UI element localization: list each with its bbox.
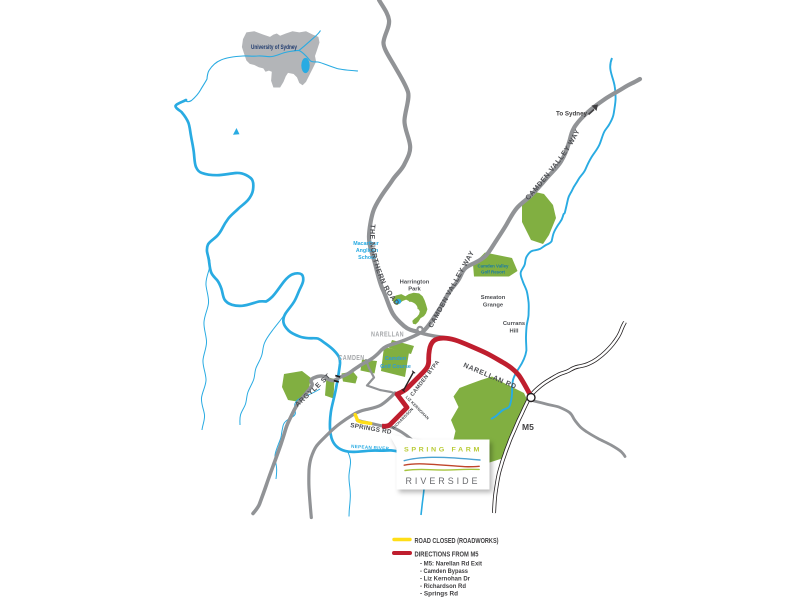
svg-text:CAMDEN VALLEY WAY: CAMDEN VALLEY WAY: [428, 250, 477, 330]
svg-text:CAMDEN: CAMDEN: [339, 353, 365, 362]
svg-text:Smeaton: Smeaton: [481, 295, 506, 301]
svg-text:RIVERSIDE: RIVERSIDE: [406, 476, 481, 486]
svg-text:Park: Park: [408, 287, 421, 293]
svg-text:RICHARDSON RD: RICHARDSON RD: [0, 0, 414, 430]
svg-text:Grange: Grange: [483, 303, 504, 309]
svg-text:Harrington: Harrington: [400, 280, 430, 286]
svg-text:Golf Course: Golf Course: [380, 364, 411, 370]
svg-text:SPRING FARM: SPRING FARM: [404, 447, 482, 454]
svg-text:Golf Resort: Golf Resort: [481, 270, 505, 275]
svg-text:- Richardson Rd: - Richardson Rd: [420, 583, 466, 590]
svg-text:Camden Valley: Camden Valley: [478, 264, 510, 269]
svg-text:- M5: Narellan Rd Exit: - M5: Narellan Rd Exit: [420, 561, 483, 568]
svg-text:- Springs Rd: - Springs Rd: [420, 591, 458, 598]
svg-text:Camden: Camden: [385, 356, 406, 362]
svg-text:ROAD CLOSED (ROADWORKS): ROAD CLOSED (ROADWORKS): [415, 536, 499, 545]
svg-text:Hill: Hill: [509, 329, 518, 335]
svg-text:To Sydney: To Sydney: [556, 111, 587, 118]
svg-text:- Camden Bypass: - Camden Bypass: [420, 568, 468, 575]
svg-text:Currans: Currans: [503, 321, 525, 327]
svg-text:M5: M5: [522, 422, 534, 432]
svg-text:NARELLAN: NARELLAN: [371, 330, 404, 339]
svg-text:CAMDEN VALLEY WAY: CAMDEN VALLEY WAY: [525, 128, 582, 202]
svg-text:- Liz Kernohan Dr: - Liz Kernohan Dr: [420, 576, 470, 583]
svg-text:DIRECTIONS FROM M5: DIRECTIONS FROM M5: [415, 550, 479, 559]
svg-text:University of Sydney: University of Sydney: [251, 45, 298, 51]
